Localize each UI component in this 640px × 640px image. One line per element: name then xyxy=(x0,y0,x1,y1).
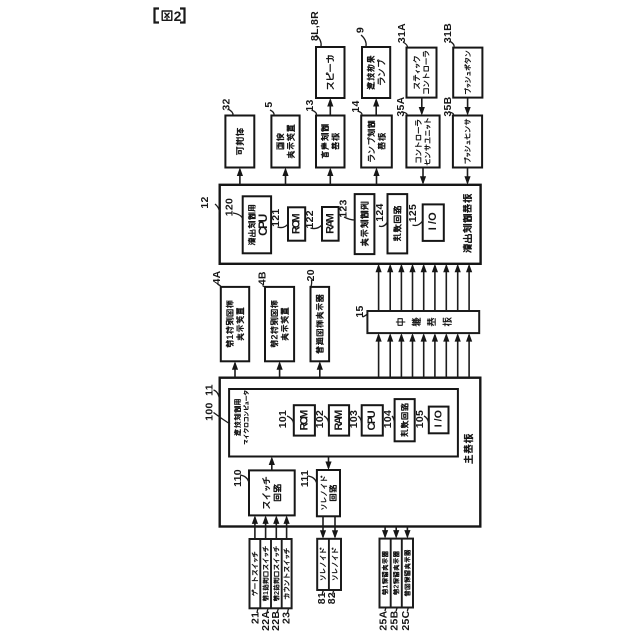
svg-text:14: 14 xyxy=(350,100,362,112)
svg-text:/: / xyxy=(427,221,439,224)
svg-text:121: 121 xyxy=(270,208,282,226)
svg-text:2: 2 xyxy=(272,591,281,595)
svg-text:25B: 25B xyxy=(389,610,401,630)
svg-text:13: 13 xyxy=(304,99,316,111)
svg-text:82: 82 xyxy=(326,592,338,604)
svg-text:105: 105 xyxy=(414,410,426,428)
svg-text:25C: 25C xyxy=(400,610,412,630)
svg-text:I: I xyxy=(433,424,445,427)
svg-text:103: 103 xyxy=(348,410,360,428)
svg-text:32: 32 xyxy=(221,98,233,110)
svg-text:100: 100 xyxy=(203,402,215,420)
svg-text:M: M xyxy=(291,213,303,222)
svg-text:/: / xyxy=(433,418,445,421)
svg-text:124: 124 xyxy=(374,203,386,221)
svg-text:31A: 31A xyxy=(396,23,408,43)
svg-text:O: O xyxy=(433,410,445,418)
svg-text:O: O xyxy=(427,212,439,221)
svg-text:23: 23 xyxy=(281,612,293,624)
svg-text:125: 125 xyxy=(407,204,419,222)
svg-text:U: U xyxy=(366,410,378,418)
svg-text:M: M xyxy=(324,213,336,222)
svg-text:U: U xyxy=(256,214,270,223)
svg-text:31B: 31B xyxy=(442,23,454,43)
svg-text:8L,8R: 8L,8R xyxy=(309,11,321,41)
svg-text:12: 12 xyxy=(199,196,211,208)
svg-text:2: 2 xyxy=(392,585,401,589)
svg-text:2: 2 xyxy=(269,334,279,339)
svg-text:5: 5 xyxy=(263,101,275,107)
svg-text:1: 1 xyxy=(261,591,270,595)
svg-text:111: 111 xyxy=(299,470,311,487)
svg-text:101: 101 xyxy=(277,410,289,428)
svg-text:123: 123 xyxy=(337,199,349,217)
svg-text:20: 20 xyxy=(305,269,317,281)
svg-text:122: 122 xyxy=(304,210,316,228)
svg-text:1: 1 xyxy=(225,334,235,339)
svg-text:102: 102 xyxy=(314,410,326,428)
svg-text:1: 1 xyxy=(381,585,390,589)
svg-text:I: I xyxy=(427,227,439,230)
svg-text:104: 104 xyxy=(382,410,394,428)
svg-text:9: 9 xyxy=(355,27,367,33)
svg-text:25A: 25A xyxy=(377,610,389,630)
svg-text:4A: 4A xyxy=(211,270,223,284)
svg-text:4B: 4B xyxy=(256,271,268,285)
svg-text:35A: 35A xyxy=(395,96,407,116)
svg-text:M: M xyxy=(298,410,310,419)
svg-text:110: 110 xyxy=(232,469,244,487)
svg-text:M: M xyxy=(333,410,345,419)
